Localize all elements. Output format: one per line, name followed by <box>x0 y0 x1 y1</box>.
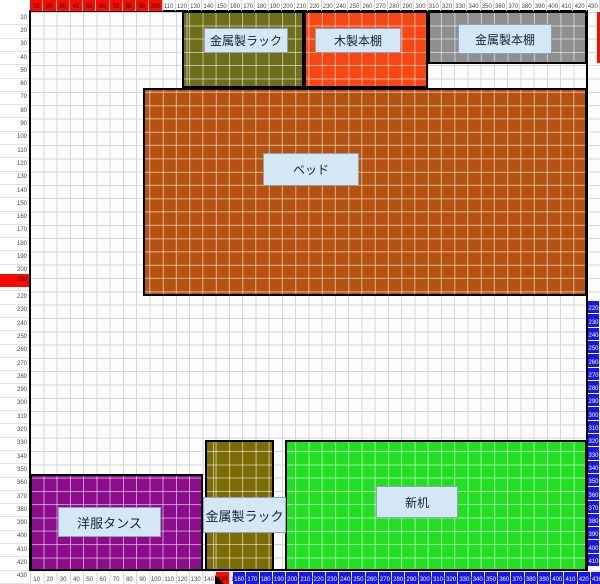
ruler-right-blue-cell: 290 <box>588 394 599 406</box>
ruler-bottom-cell: 40 <box>70 572 83 584</box>
ruler-top-cell: 10 <box>30 0 43 11</box>
ruler-right-blue-cell: 380 <box>588 514 599 526</box>
bed[interactable] <box>143 88 587 296</box>
ruler-left-cell: 20 <box>0 25 29 38</box>
ruler-bottom-blue-cell: 390 <box>538 572 550 584</box>
ruler-top-cell: 80 <box>123 0 136 11</box>
ruler-top-cell: 180 <box>255 0 268 11</box>
ruler-bottom-blue-cell: 380 <box>525 572 537 584</box>
ruler-top-cell: 150 <box>216 0 229 11</box>
ruler-bottom-cell: 50 <box>83 572 96 584</box>
ruler-bottom-blue-cell: 370 <box>511 572 523 584</box>
ruler-left-cell: 80 <box>0 105 29 118</box>
ruler-left-cell: 290 <box>0 384 29 397</box>
metal-rack-bottom-label[interactable]: 金属製ラック <box>203 497 286 533</box>
ruler-left-cell: 310 <box>0 411 29 424</box>
ruler-top-cell: 160 <box>229 0 242 11</box>
ruler-bottom-cell: 70 <box>110 572 123 584</box>
ruler-top-cell: 290 <box>401 0 414 11</box>
ruler-bottom-blue-cell: 300 <box>419 572 431 584</box>
ruler-top-cell: 40 <box>70 0 83 11</box>
ruler-right-blue-cell: 310 <box>588 421 599 433</box>
ruler-bottom-cell: 100 <box>149 572 162 584</box>
ruler-top-cell: 110 <box>163 0 176 11</box>
ruler-left-cell: 120 <box>0 158 29 171</box>
ruler-top-cell: 140 <box>202 0 215 11</box>
ruler-bottom-blue-cell: 190 <box>273 572 285 584</box>
ruler-top-cell: 320 <box>441 0 454 11</box>
ruler-left-cell: 30 <box>0 39 29 52</box>
ruler-bottom-blue-cell: 350 <box>485 572 497 584</box>
ruler-left-cell: 50 <box>0 65 29 78</box>
ruler-right-blue-cell: 250 <box>588 341 599 353</box>
ruler-left-cell: 170 <box>0 225 29 238</box>
ruler-bottom-blue-cell: 230 <box>326 572 338 584</box>
ruler-left-cell: 390 <box>0 517 29 530</box>
ruler-right-blue-cell: 240 <box>588 328 599 340</box>
ruler-bottom-blue-cell: 280 <box>392 572 404 584</box>
ruler-top-cell: 340 <box>467 0 480 11</box>
ruler-top-cell: 280 <box>388 0 401 11</box>
ruler-right-blue-cell: 360 <box>588 487 599 499</box>
ruler-top-cell: 70 <box>110 0 123 11</box>
clothes-dresser-label[interactable]: 洋服タンス <box>58 507 161 537</box>
ruler-left-cell: 110 <box>0 145 29 158</box>
ruler-top-cell: 130 <box>189 0 202 11</box>
ruler-top-cell: 220 <box>308 0 321 11</box>
ruler-left-cell: 160 <box>0 212 29 225</box>
ruler-top-cell: 100 <box>149 0 162 11</box>
ruler-right-blue-cell: 410 <box>588 554 599 566</box>
ruler-right-blue-cell: 390 <box>588 527 599 539</box>
ruler-top-cell: 90 <box>136 0 149 11</box>
ruler-left-cell: 300 <box>0 398 29 411</box>
ruler-left-cell: 10 <box>0 12 29 25</box>
ruler-bottom-blue-cell: 340 <box>472 572 484 584</box>
ruler-top-cell: 50 <box>83 0 96 11</box>
ruler-left-cell: 60 <box>0 79 29 92</box>
ruler-bottom-blue-cell: 210 <box>299 572 311 584</box>
ruler-right-blue-cell: 330 <box>588 447 599 459</box>
ruler-right-blue-cell: 320 <box>588 434 599 446</box>
ruler-left-cell: 270 <box>0 358 29 371</box>
ruler-bottom-cell: 80 <box>123 572 136 584</box>
ruler-bottom-blue-cell: 170 <box>246 572 258 584</box>
ruler-top-cell: 390 <box>534 0 547 11</box>
ruler-bottom-blue-cell: 160 <box>233 572 245 584</box>
ruler-top-cell: 310 <box>428 0 441 11</box>
ruler-bottom-blue-cell: 420 <box>578 572 590 584</box>
ruler-top-cell: 400 <box>547 0 560 11</box>
ruler-left-cell: 430 <box>0 571 29 584</box>
ruler-top-cell: 410 <box>560 0 573 11</box>
ruler-left-cell: 340 <box>0 451 29 464</box>
ruler-bottom-blue-cell: 260 <box>366 572 378 584</box>
ruler-right-blue-cell: 300 <box>588 407 599 419</box>
ruler-left-cell: 150 <box>0 198 29 211</box>
ruler-top-cell: 250 <box>348 0 361 11</box>
ruler-left-cell: 90 <box>0 118 29 131</box>
ruler-bottom-blue-cell: 270 <box>379 572 391 584</box>
ruler-bottom-cell: 10 <box>30 572 43 584</box>
ruler-top-cell: 200 <box>282 0 295 11</box>
ruler-left-red-cell: 200 <box>0 274 29 287</box>
ruler-top-cell: 240 <box>335 0 348 11</box>
ruler-top-cell: 270 <box>375 0 388 11</box>
bed-label[interactable]: ベッド <box>263 153 359 186</box>
ruler-bottom-blue-cell: 240 <box>339 572 351 584</box>
ruler-bottom-cell: 20 <box>43 572 56 584</box>
ruler-top-cell: 120 <box>176 0 189 11</box>
ruler-bottom-cell: 110 <box>163 572 176 584</box>
ruler-left-cell: 140 <box>0 185 29 198</box>
ruler-right-blue-cell: 350 <box>588 474 599 486</box>
ruler-left-cell: 400 <box>0 531 29 544</box>
ruler-bottom-cell: 30 <box>57 572 70 584</box>
ruler-right-blue-cell: 370 <box>588 501 599 513</box>
ruler-top-cell: 210 <box>295 0 308 11</box>
ruler-left-cell: 190 <box>0 251 29 264</box>
ruler-top-cell: 330 <box>454 0 467 11</box>
ruler-right-blue-cell: 230 <box>588 314 599 326</box>
ruler-bottom-cell: 90 <box>136 572 149 584</box>
ruler-top-cell: 360 <box>494 0 507 11</box>
new-desk-label[interactable]: 新机 <box>376 486 458 518</box>
ruler-left-cell: 180 <box>0 238 29 251</box>
ruler-right-blue-cell: 260 <box>588 354 599 366</box>
ruler-right-blue-cell: 220 <box>588 301 599 313</box>
ruler-right-blue-cell: 340 <box>588 461 599 473</box>
metal-rack-top-label[interactable]: 金属製ラック <box>204 28 288 53</box>
ruler-left-cell: 320 <box>0 424 29 437</box>
ruler-left-cell: 260 <box>0 345 29 358</box>
ruler-right-blue-cell: 270 <box>588 368 599 380</box>
ruler-bottom-blue-cell: 320 <box>445 572 457 584</box>
ruler-top-cell: 350 <box>481 0 494 11</box>
ruler-bottom-blue-cell: 310 <box>432 572 444 584</box>
ruler-top-cell: 170 <box>242 0 255 11</box>
ruler-top-cell: 20 <box>43 0 56 11</box>
ruler-bottom-blue-cell: 400 <box>551 572 563 584</box>
ruler-left-cell: 40 <box>0 52 29 65</box>
ruler-left-cell: 360 <box>0 478 29 491</box>
ruler-left-cell: 350 <box>0 464 29 477</box>
ruler-bottom-cell: 60 <box>96 572 109 584</box>
ruler-right-blue-cell: 400 <box>588 540 599 552</box>
ruler-bottom-blue-cell: 410 <box>564 572 576 584</box>
ruler-bottom-blue-cell: 200 <box>286 572 298 584</box>
ruler-top-cell: 380 <box>520 0 533 11</box>
ruler-bottom-blue-cell: 360 <box>498 572 510 584</box>
ruler-left-cell: 380 <box>0 504 29 517</box>
ruler-top-cell: 430 <box>587 0 600 11</box>
ruler-left-cell: 330 <box>0 438 29 451</box>
metal-bookshelf-label[interactable]: 金属製本棚 <box>458 24 552 54</box>
ruler-top-cell: 190 <box>269 0 282 11</box>
ruler-left-cell: 240 <box>0 318 29 331</box>
ruler-top-cell: 420 <box>573 0 586 11</box>
ruler-left-cell: 280 <box>0 371 29 384</box>
room-canvas: 金属製ラック木製本棚金属製本棚ベッド洋服タンス金属製ラック新机 10203040… <box>0 0 600 584</box>
wood-bookshelf-label[interactable]: 木製本棚 <box>315 28 401 53</box>
ruler-left-cell: 220 <box>0 291 29 304</box>
ruler-bottom-blue-cell: 250 <box>352 572 364 584</box>
ruler-bottom-blue-cell: 220 <box>313 572 325 584</box>
ruler-left-cell: 250 <box>0 331 29 344</box>
ruler-bottom-cell: 120 <box>176 572 189 584</box>
ruler-top-cell: 370 <box>507 0 520 11</box>
ruler-right-blue-cell: 280 <box>588 381 599 393</box>
ruler-left-cell: 70 <box>0 92 29 105</box>
ruler-left-cell: 420 <box>0 557 29 570</box>
ruler-left-cell: 100 <box>0 132 29 145</box>
ruler-top-cell: 260 <box>361 0 374 11</box>
ruler-bottom-blue-cell: 290 <box>405 572 417 584</box>
ruler-top-cell: 230 <box>322 0 335 11</box>
ruler-bottom-blue-cell: 180 <box>260 572 272 584</box>
ruler-bottom-cell: 140 <box>202 572 215 584</box>
ruler-left-cell: 130 <box>0 172 29 185</box>
ruler-bottom-cell: 130 <box>189 572 202 584</box>
ruler-left-cell: 370 <box>0 491 29 504</box>
ruler-bottom-blue-cell: 330 <box>458 572 470 584</box>
ruler-left-cell: 410 <box>0 544 29 557</box>
ruler-bottom-blue-cell: 430 <box>591 572 600 584</box>
ruler-top-cell: 30 <box>57 0 70 11</box>
ruler-top-cell: 300 <box>414 0 427 11</box>
ruler-left-cell: 230 <box>0 305 29 318</box>
ruler-top-cell: 60 <box>96 0 109 11</box>
